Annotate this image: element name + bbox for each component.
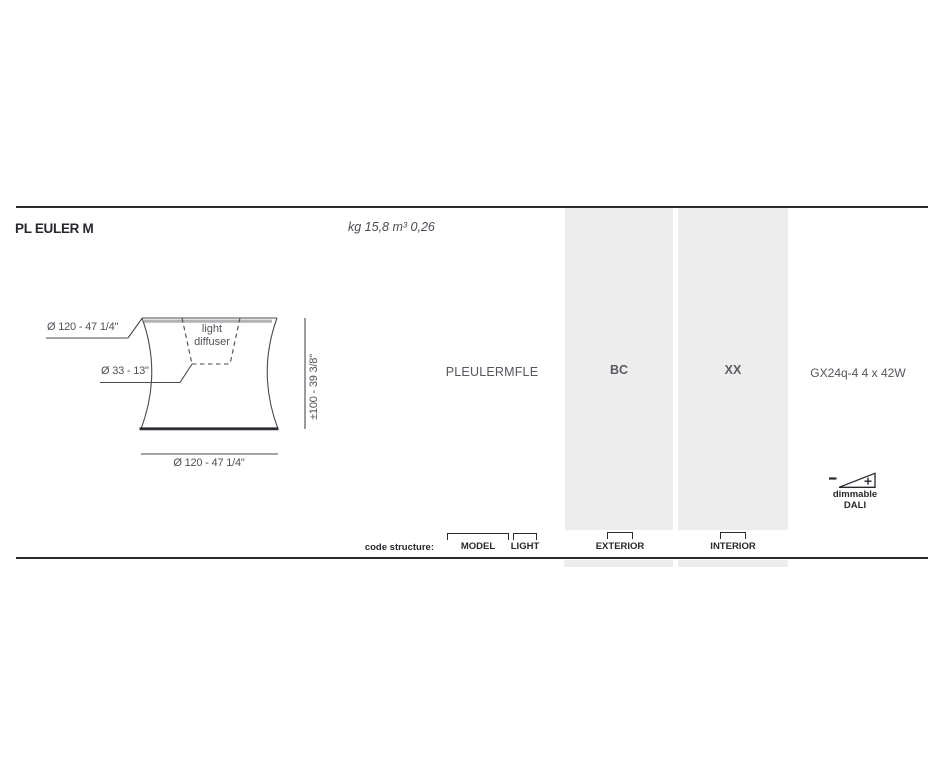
interior-code-text: XX	[725, 363, 742, 377]
dimmable-caption-line1: dimmable	[833, 489, 877, 500]
top-diameter-label: Ø 120 - 47 1/4"	[47, 321, 118, 333]
plus-glyph	[865, 478, 872, 485]
diffuser-label-line2: diffuser	[194, 336, 230, 349]
next-row-interior-column-edge	[678, 560, 788, 567]
lamp-spec-text: GX24q-4 4 x 42W	[810, 366, 905, 380]
bracket-exterior	[607, 532, 633, 539]
exterior-code-text: BC	[610, 363, 628, 377]
diffuser-label: light diffuser	[194, 323, 230, 348]
dimmable-caption: dimmable DALI	[833, 489, 877, 511]
dimmable-caption-line2: DALI	[833, 500, 877, 511]
lamp-right-profile	[267, 318, 278, 429]
next-row-exterior-column-edge	[564, 560, 673, 567]
inner-diameter-label: Ø 33 - 13"	[101, 365, 149, 377]
weight-volume-note: kg 15,8 m³ 0,26	[348, 220, 435, 234]
ramp-triangle	[839, 473, 875, 487]
dimmer-ramp-icon	[827, 468, 881, 490]
bottom-divider	[16, 557, 928, 559]
diffuser-label-line1: light	[194, 323, 230, 336]
catalog-page: PL EULER M kg 15,8 m³ 0,26	[0, 0, 928, 760]
bracket-label-light: LIGHT	[511, 541, 540, 552]
bracket-model	[447, 533, 509, 540]
top-divider	[16, 206, 928, 208]
bracket-interior	[720, 532, 746, 539]
bracket-light	[513, 533, 537, 540]
model-code-text: PLEULERMFLE	[446, 365, 539, 379]
product-title: PL EULER M	[15, 221, 94, 236]
bracket-label-interior: INTERIOR	[710, 541, 755, 552]
bracket-label-model: MODEL	[461, 541, 495, 552]
code-structure-label: code structure:	[365, 542, 434, 553]
bottom-diameter-label: Ø 120 - 47 1/4"	[173, 457, 244, 469]
bracket-label-exterior: EXTERIOR	[596, 541, 645, 552]
height-dimension-label: ±100 - 39 3/8"	[308, 354, 320, 420]
